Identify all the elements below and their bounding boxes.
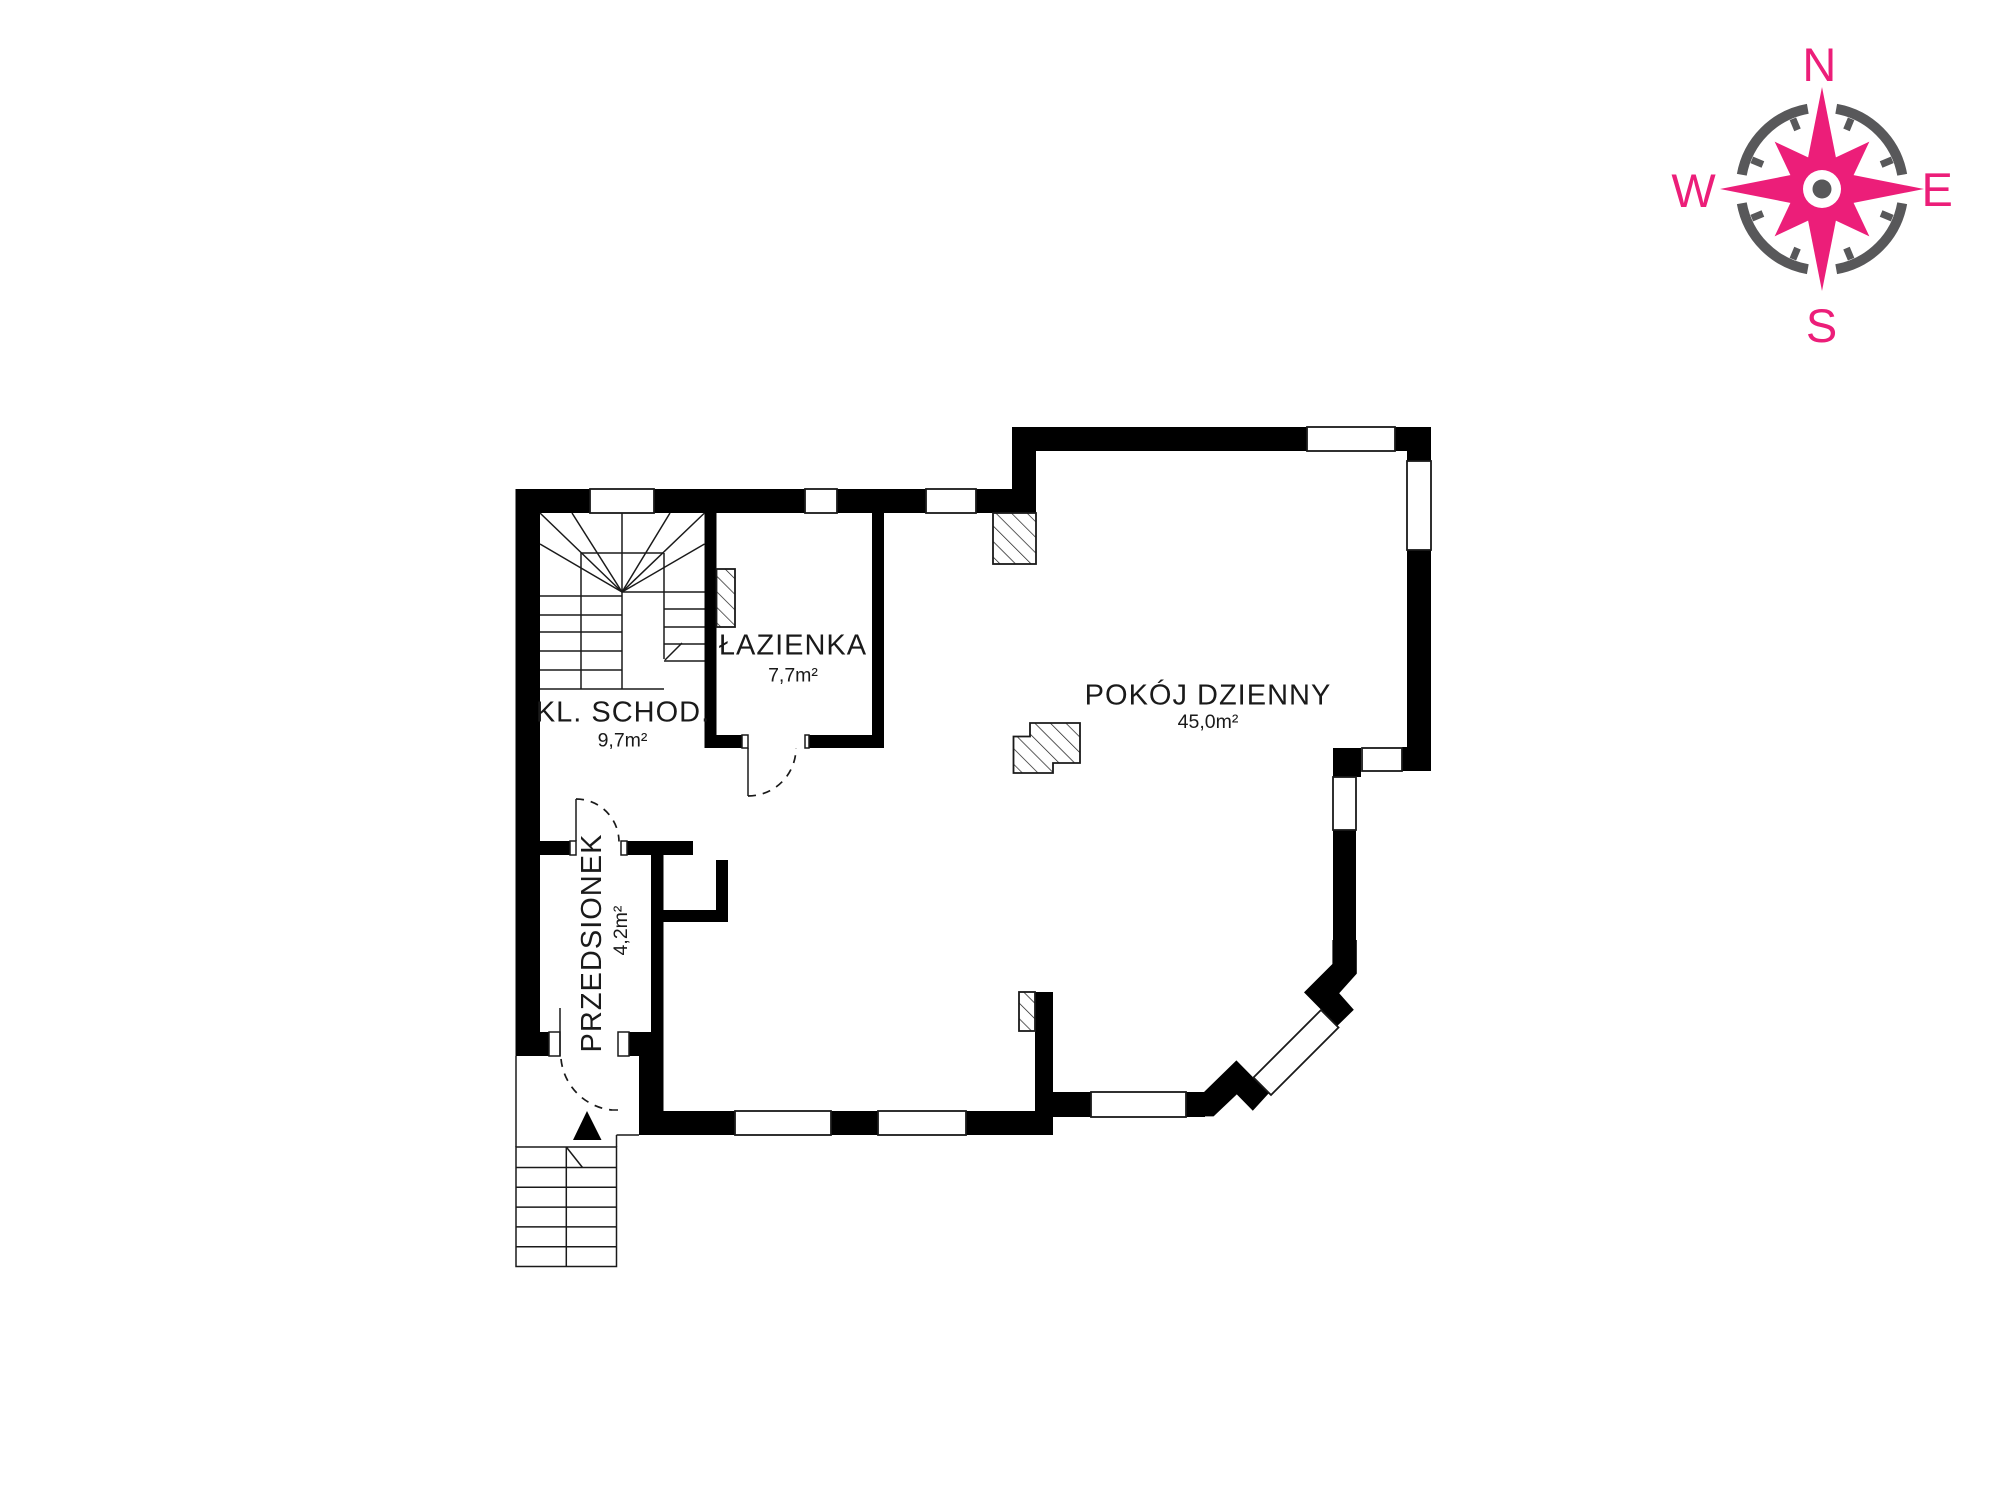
svg-text:ŁAZIENKA: ŁAZIENKA	[719, 630, 867, 662]
svg-text:KL. SCHOD.: KL. SCHOD.	[536, 697, 710, 729]
svg-text:N: N	[1802, 38, 1836, 91]
svg-text:W: W	[1671, 164, 1716, 217]
svg-text:E: E	[1922, 163, 1953, 216]
svg-text:45,0m²: 45,0m²	[1178, 711, 1239, 733]
svg-text:9,7m²: 9,7m²	[598, 730, 648, 752]
svg-text:PRZEDSIONEK: PRZEDSIONEK	[576, 834, 608, 1053]
svg-text:POKÓJ DZIENNY: POKÓJ DZIENNY	[1085, 679, 1332, 712]
svg-text:7,7m²: 7,7m²	[768, 665, 818, 687]
svg-text:4,2m²: 4,2m²	[610, 905, 632, 955]
svg-text:S: S	[1806, 299, 1837, 352]
